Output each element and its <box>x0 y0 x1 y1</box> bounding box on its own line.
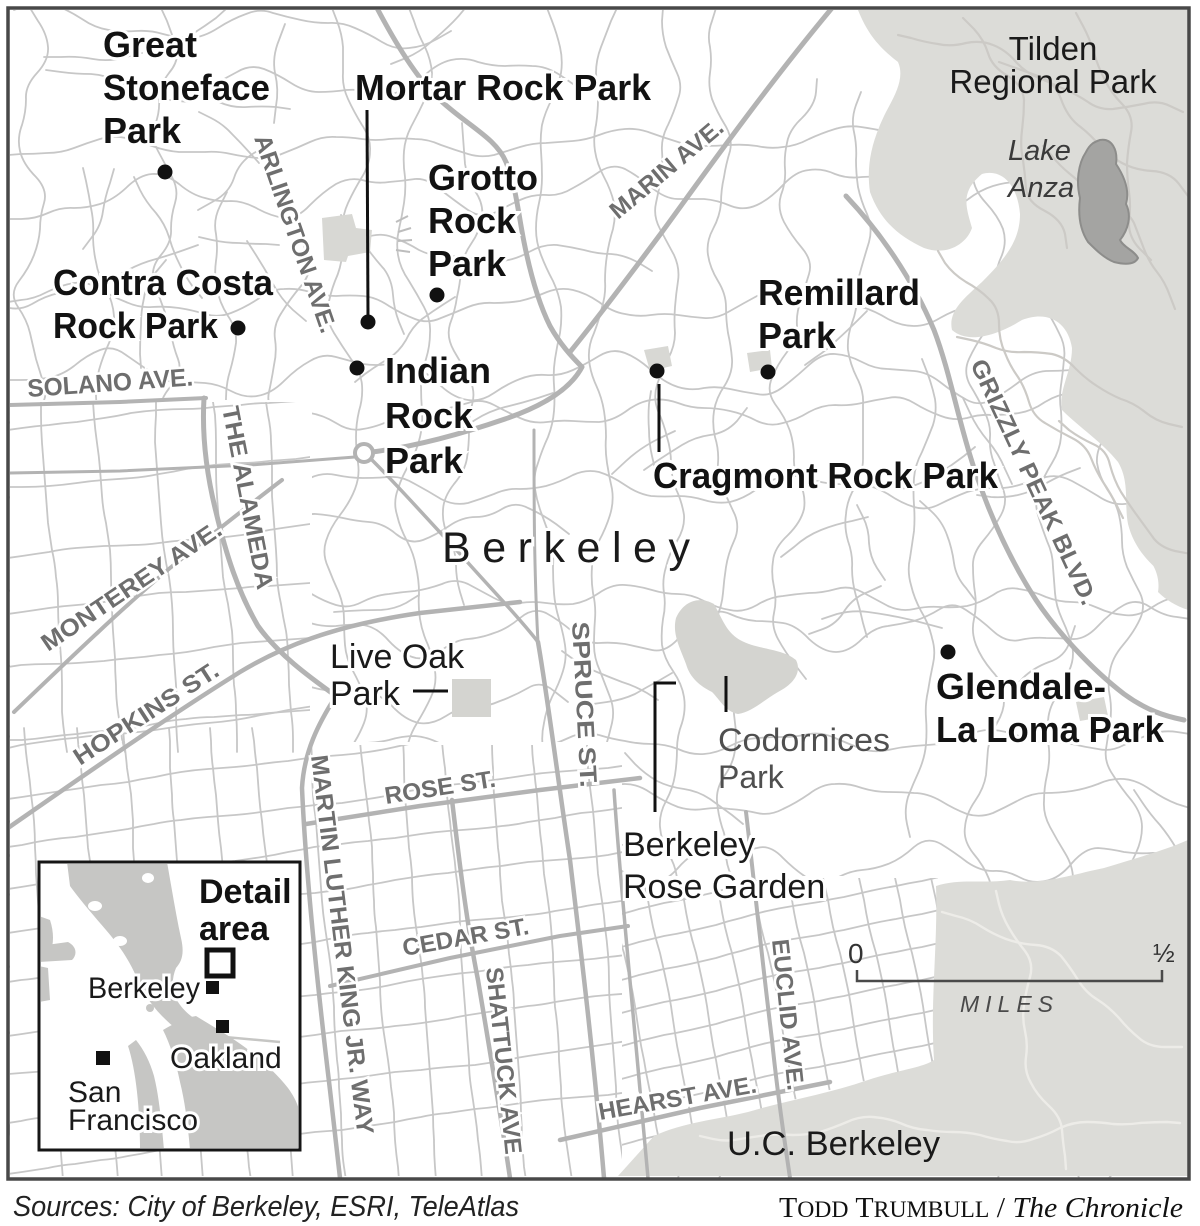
svg-text:Berkeley: Berkeley <box>623 826 755 864</box>
svg-text:½: ½ <box>1153 938 1175 968</box>
svg-text:Park: Park <box>103 110 182 151</box>
svg-text:Francisco: Francisco <box>68 1104 198 1137</box>
svg-text:Rock: Rock <box>385 395 474 436</box>
svg-text:Regional Park: Regional Park <box>949 63 1157 100</box>
svg-text:Stoneface: Stoneface <box>103 67 270 108</box>
svg-text:Berkeley: Berkeley <box>88 972 200 1005</box>
svg-text:Sources: City of Berkeley, ESR: Sources: City of Berkeley, ESRI, TeleAtl… <box>13 1191 519 1223</box>
svg-text:Anza: Anza <box>1006 172 1074 204</box>
svg-text:0: 0 <box>848 938 864 969</box>
svg-text:Detail: Detail <box>199 873 292 911</box>
svg-text:Grotto: Grotto <box>428 157 538 198</box>
svg-text:Codornices: Codornices <box>718 722 890 758</box>
svg-text:Rock: Rock <box>428 200 517 241</box>
svg-text:Park: Park <box>330 675 401 713</box>
svg-text:Lake: Lake <box>1008 135 1071 167</box>
svg-text:Park: Park <box>718 759 785 795</box>
svg-text:Tilden: Tilden <box>1009 30 1098 67</box>
svg-text:Mortar Rock Park: Mortar Rock Park <box>355 67 652 108</box>
svg-text:TODD TRUMBULL / The Chronicle: TODD TRUMBULL / The Chronicle <box>779 1192 1183 1224</box>
svg-text:Glendale-: Glendale- <box>936 666 1106 707</box>
svg-text:Cragmont Rock Park: Cragmont Rock Park <box>653 455 999 496</box>
svg-text:Rock Park: Rock Park <box>53 305 219 346</box>
svg-text:area: area <box>199 910 270 948</box>
svg-text:Park: Park <box>758 315 837 356</box>
svg-text:Live Oak: Live Oak <box>330 638 465 676</box>
svg-text:MILES: MILES <box>960 991 1059 1017</box>
svg-text:Contra Costa: Contra Costa <box>53 262 274 303</box>
svg-text:Indian: Indian <box>385 350 491 391</box>
svg-text:Great: Great <box>103 24 197 65</box>
svg-text:U.C. Berkeley: U.C. Berkeley <box>727 1125 940 1163</box>
svg-text:Remillard: Remillard <box>758 272 920 313</box>
svg-text:Park: Park <box>428 243 507 284</box>
svg-text:Park: Park <box>385 440 464 481</box>
svg-text:La Loma Park: La Loma Park <box>936 709 1165 750</box>
svg-text:Oakland: Oakland <box>170 1042 282 1075</box>
svg-text:Rose Garden: Rose Garden <box>623 868 825 906</box>
